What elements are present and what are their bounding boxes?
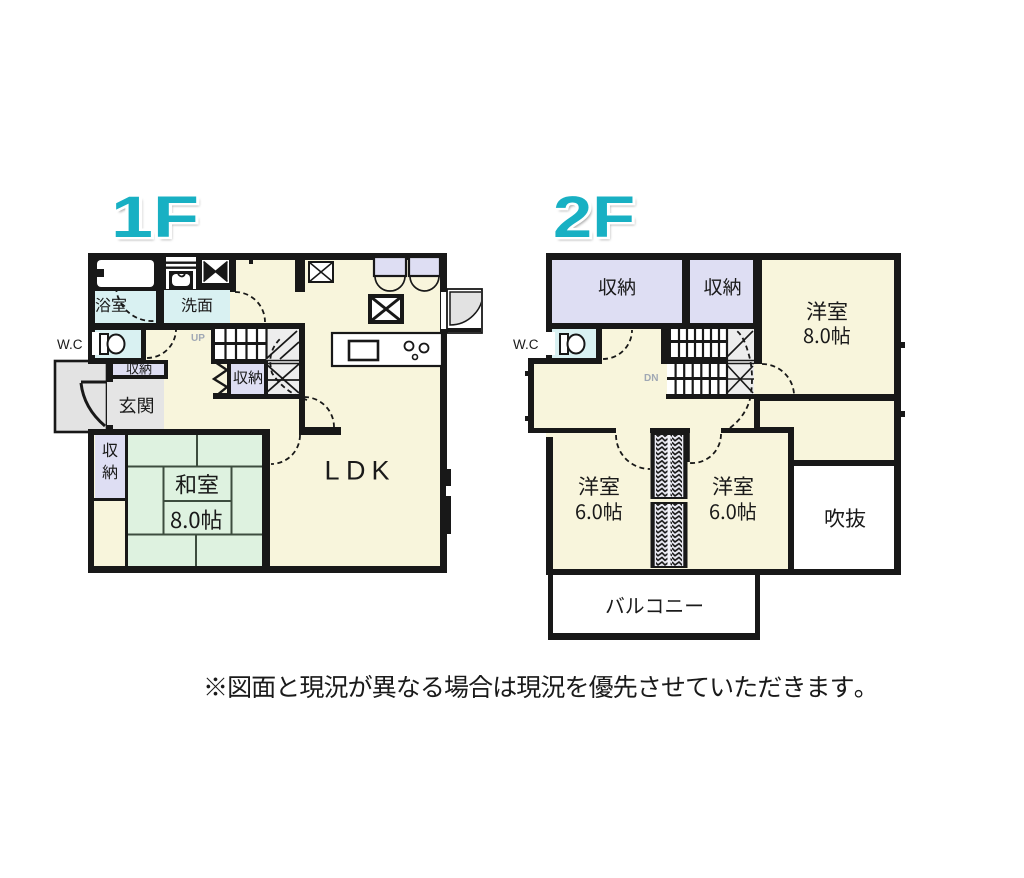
svg-text:W.C: W.C [57, 337, 83, 352]
svg-text:1F: 1F [111, 185, 199, 250]
svg-text:W.C: W.C [513, 337, 539, 352]
svg-text:LDK: LDK [325, 456, 390, 486]
svg-text:2F: 2F [553, 185, 635, 250]
svg-text:UP: UP [191, 333, 205, 344]
svg-text:DN: DN [644, 373, 658, 384]
